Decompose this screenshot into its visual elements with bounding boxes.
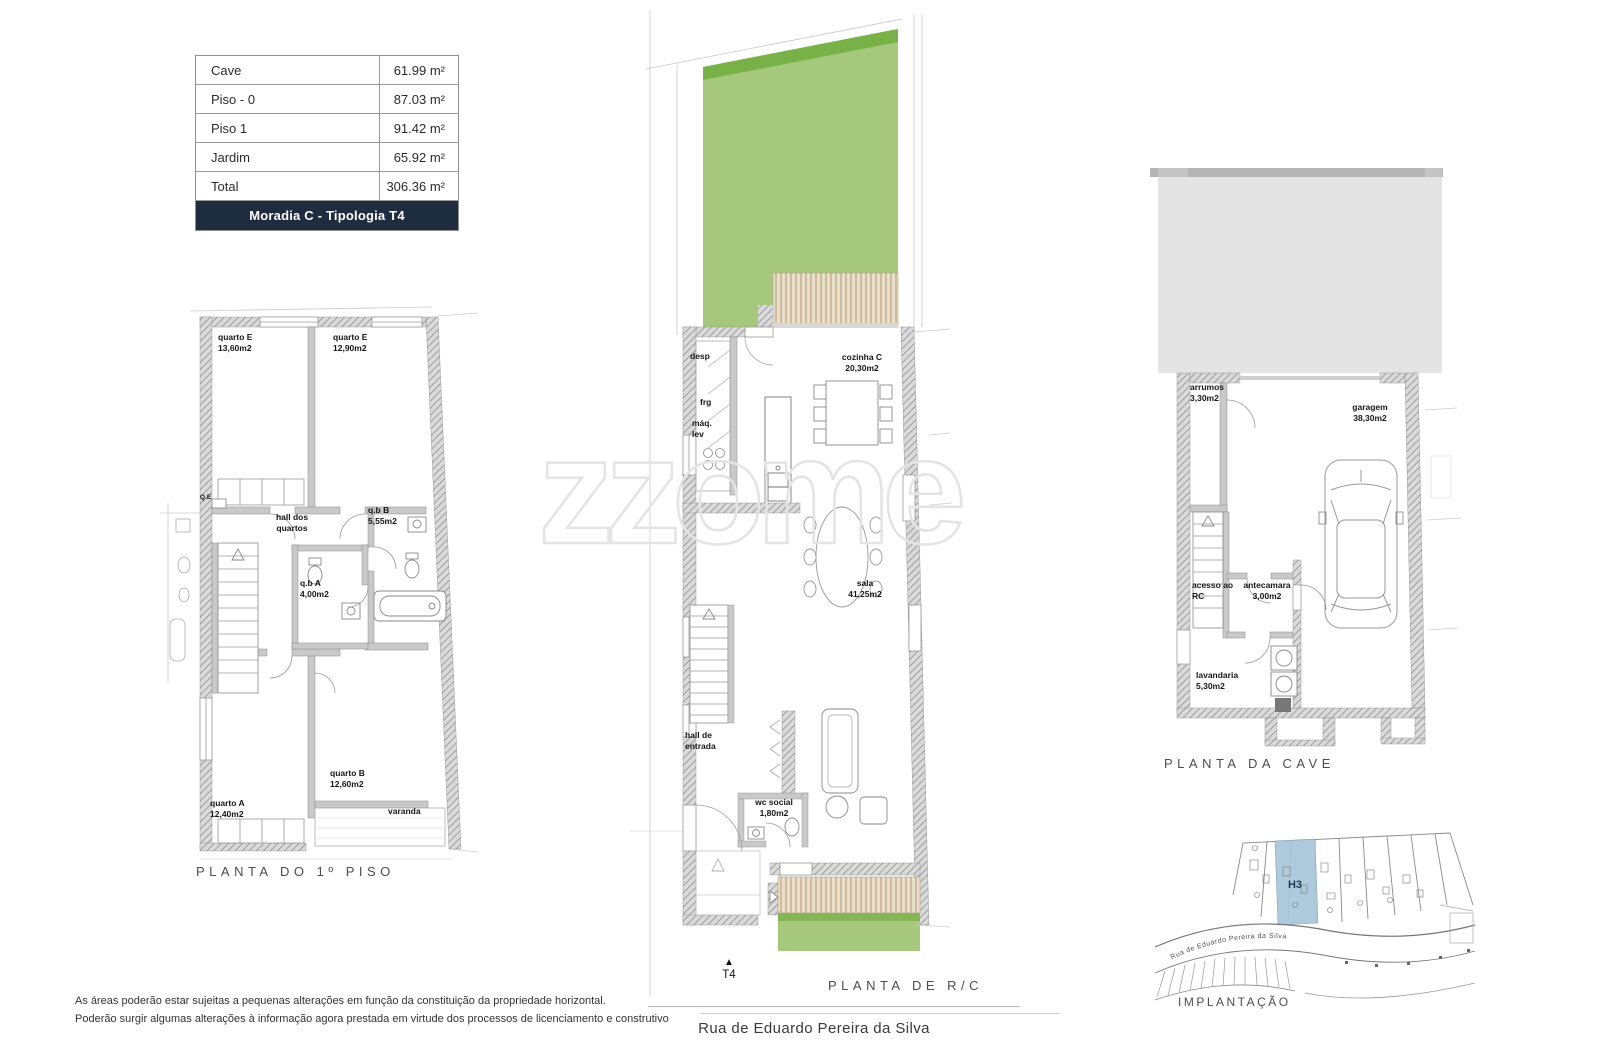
room-label-quarto-e-right: quarto E12,90m2 [333,332,367,353]
room-label-electrical-box: Q.E [200,494,211,502]
lower-deck-and-garden [770,877,920,951]
row-value: 65.92 m² [380,150,458,165]
kitchen-table [814,381,892,445]
row-value: 87.03 m² [380,92,458,107]
implantation-title: IMPLANTAÇÃO [1178,995,1291,1009]
floorplan-sheet: Cave 61.99 m² Piso - 0 87.03 m² Piso 1 9… [0,0,1600,1062]
room-label-quarto-e-left: quarto E13,60m2 [218,332,252,353]
street-name: Rua de Eduardo Pereira da Silva [664,1020,964,1037]
room-label-hall-quartos: hall dos quartos [263,512,321,533]
room-label-maq-lev: máq. lev [692,418,720,439]
room-label-quarto-a: quarto A12,40m2 [210,798,245,819]
disclaimer-line-1: As áreas poderão estar sujeitas a pequen… [75,993,669,1011]
stairs [690,605,734,723]
room-label-arrumos: arrumos3,30m2 [1190,382,1236,403]
unit-marker-label: T4 [710,968,748,983]
neighbor-fixtures [170,519,190,661]
room-label-acesso: acesso ao RC [1192,580,1236,601]
disclaimer-line-2: Poderão surgir algumas alterações à info… [75,1011,669,1029]
entrance-arrow-icon: ▲ [710,958,748,968]
row-label: Cave [196,56,380,84]
ground-floor-plan-drawing [630,5,960,1010]
row-label: Total [196,172,380,200]
cave-plan-drawing [1125,160,1485,750]
kitchen-island [765,397,791,505]
room-label-desp: desp [690,351,710,362]
right-side-ticks [1425,408,1461,630]
row-value: 91.42 m² [380,121,458,136]
deck-wall-stub [758,305,773,327]
room-label-antecamara: antecamara3,00m2 [1236,580,1298,601]
room-label-qb-a: q.b A4,00m2 [300,578,329,599]
table-row: Total 306.36 m² [196,172,458,201]
table-row: Cave 61.99 m² [196,56,458,85]
room-label-varanda: varanda [388,806,421,817]
room-label-wc-social: wc social1,80m2 [745,797,803,818]
street-line [648,1006,1020,1007]
disclaimer: As áreas poderão estar sujeitas a pequen… [75,993,669,1028]
room-label-qb-b: q.b B5,55m2 [368,505,397,526]
highlighted-unit-label: H3 [1282,879,1308,891]
map-street-name: Rua de Eduardo Pereira da Silva [1170,933,1287,961]
ground-floor-title: PLANTA DE R/C [828,978,983,993]
upper-deck [773,273,898,327]
car [1319,460,1403,628]
street-edge-markers [1345,949,1470,967]
row-value: 61.99 m² [380,63,458,78]
room-label-cozinha: cozinha C20,30m2 [822,352,902,373]
row-label: Piso - 0 [196,85,380,113]
room-label-hall-entrada: hall de entrada [685,730,733,751]
upper-slab [1150,168,1443,373]
table-row: Piso - 0 87.03 m² [196,85,458,114]
parking-hatches [1157,957,1290,997]
door-arcs [1227,400,1326,663]
stairs [1193,512,1223,628]
stairs [218,543,258,693]
row-value: 306.36 m² [380,179,458,194]
cave-title: PLANTA DA CAVE [1164,756,1335,771]
row-label: Piso 1 [196,114,380,142]
room-label-garagem: garagem38,30m2 [1330,402,1410,423]
table-footer-title: Moradia C - Tipologia T4 [196,201,458,230]
implantation-map-drawing: Rua de Eduardo Pereira da Silva [1155,815,1475,1005]
first-floor-title: PLANTA DO 1º PISO [196,864,395,879]
street-line-2 [700,1013,1060,1014]
light-wells [1265,718,1425,746]
street-curves [1155,924,1475,1000]
window-gap [1177,630,1190,664]
room-label-frg: frg [700,397,711,408]
right-blocks [1440,905,1473,943]
coat-hangers [770,720,780,778]
table-row: Jardim 65.92 m² [196,143,458,172]
bathroom-fixtures [308,517,446,621]
room-label-lavandaria: lavandaria5,30m2 [1196,670,1238,691]
table-row: Piso 1 91.42 m² [196,114,458,143]
varanda [315,808,445,846]
unit-marker: ▲ T4 [710,958,748,983]
area-table: Cave 61.99 m² Piso - 0 87.03 m² Piso 1 9… [195,55,459,231]
room-label-sala: sala41,25m2 [825,578,905,599]
sofa-set [822,709,887,824]
room-label-quarto-b: quarto B12,60m2 [330,768,365,789]
row-label: Jardim [196,143,380,171]
